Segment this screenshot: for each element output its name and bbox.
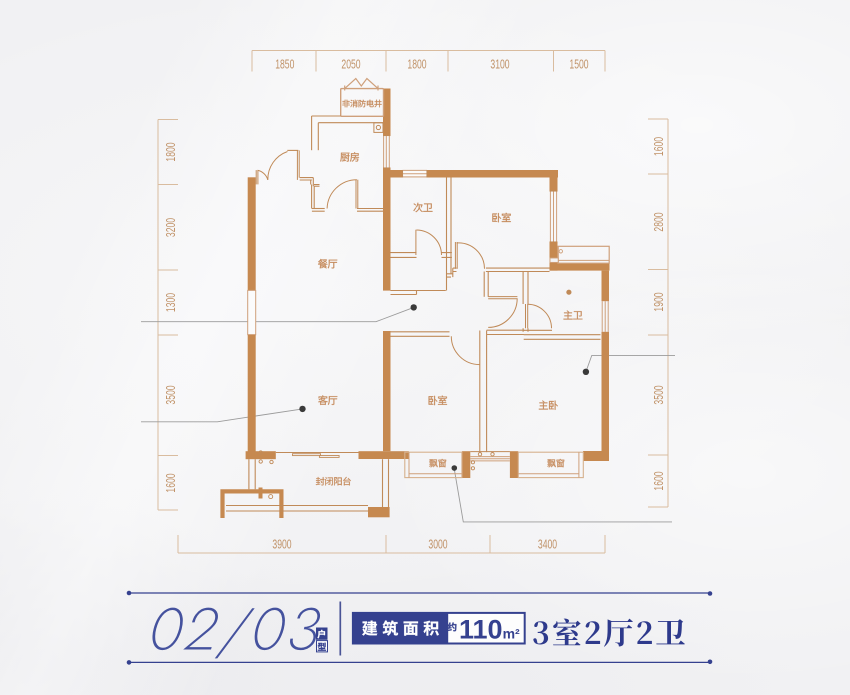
svg-text:3900: 3900: [272, 536, 291, 551]
svg-text:1500: 1500: [569, 57, 588, 72]
svg-text:1600: 1600: [651, 471, 666, 490]
svg-text:2050: 2050: [341, 57, 360, 72]
svg-text:2800: 2800: [651, 212, 666, 231]
svg-text:3400: 3400: [538, 536, 557, 551]
svg-text:1800: 1800: [407, 57, 426, 72]
svg-text:1600: 1600: [651, 137, 666, 156]
svg-text:1600: 1600: [163, 473, 178, 492]
svg-text:3100: 3100: [490, 57, 509, 72]
svg-text:3500: 3500: [163, 385, 178, 404]
svg-text:3200: 3200: [163, 218, 178, 237]
svg-text:1850: 1850: [275, 57, 294, 72]
svg-text:1900: 1900: [651, 292, 666, 311]
svg-text:3000: 3000: [428, 536, 447, 551]
svg-text:1800: 1800: [163, 142, 178, 161]
svg-text:3500: 3500: [651, 385, 666, 404]
svg-text:1300: 1300: [163, 293, 178, 312]
